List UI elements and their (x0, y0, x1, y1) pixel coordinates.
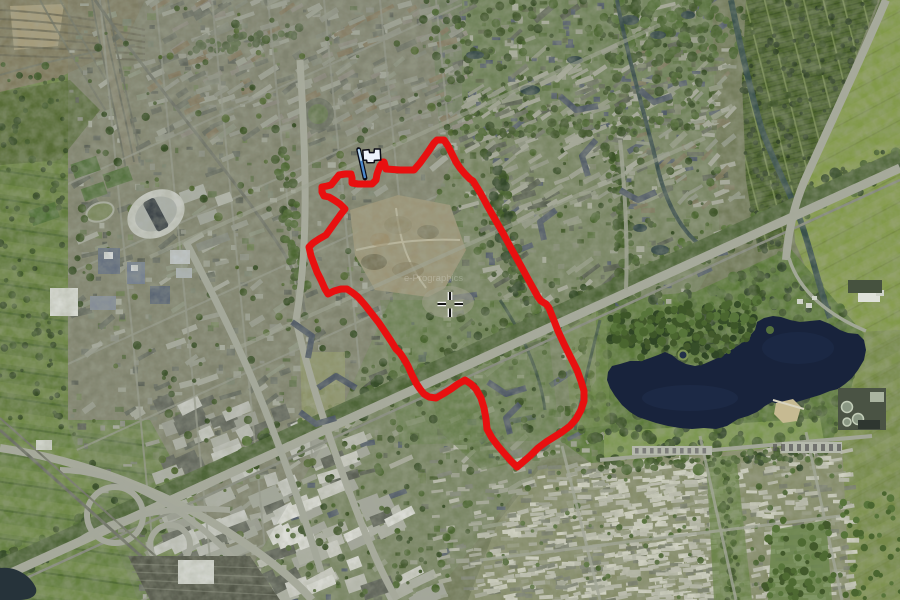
svg-text:e-Prographics: e-Prographics (404, 273, 463, 284)
